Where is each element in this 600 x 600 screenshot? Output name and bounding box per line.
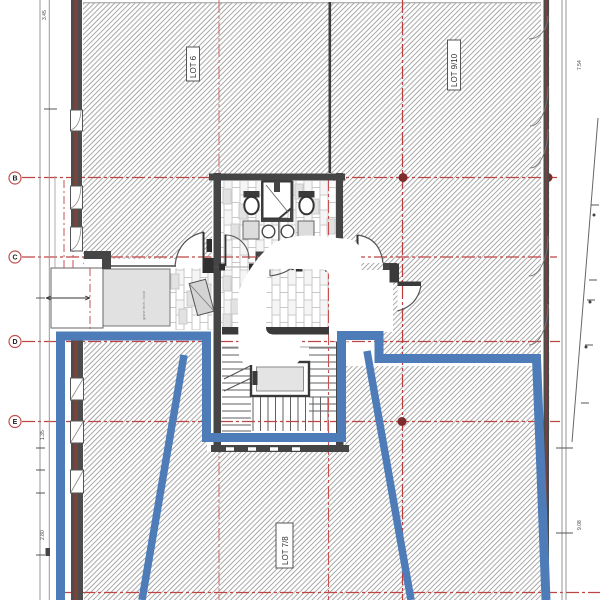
- svg-text:LOT 6: LOT 6: [189, 55, 198, 78]
- svg-text:LOT 9/10: LOT 9/10: [450, 53, 459, 87]
- svg-text:3.45: 3.45: [42, 10, 48, 20]
- svg-text:gaine tech. local: gaine tech. local: [141, 291, 146, 320]
- svg-text:7.54: 7.54: [577, 60, 583, 70]
- svg-text:C: C: [12, 255, 17, 262]
- svg-text:9.08: 9.08: [577, 520, 583, 530]
- svg-text:2.80: 2.80: [40, 530, 46, 540]
- svg-text:E: E: [13, 419, 18, 426]
- svg-text:B: B: [12, 176, 17, 183]
- svg-text:1.35: 1.35: [40, 430, 46, 440]
- svg-text:D: D: [12, 339, 17, 346]
- svg-text:LOT 7/8: LOT 7/8: [281, 536, 290, 565]
